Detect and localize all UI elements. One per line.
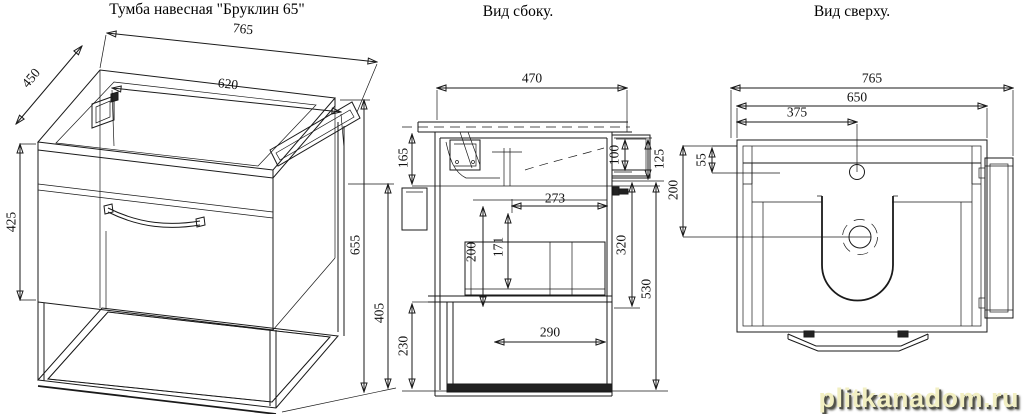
side-view-title: Вид сбоку. <box>483 3 553 21</box>
mesh-shelf <box>38 308 338 414</box>
dim-label-inner-height: 200 <box>464 242 478 262</box>
handle-top-view <box>788 331 928 351</box>
sink-cutout <box>817 196 898 301</box>
perspective-title: Тумба навесная "Бруклин 65" <box>109 1 305 19</box>
dim-label-side-depth: 470 <box>522 71 542 85</box>
dim-label-bracket-offset: 165 <box>396 148 410 168</box>
wall-bracket <box>92 92 118 128</box>
towel-rail-side <box>402 135 668 391</box>
dim-label-total-width: 765 <box>232 21 254 37</box>
perspective-view-panel: Тумба навесная "Бруклин 65" 765 620 450 … <box>0 0 400 414</box>
dim-label-body-height: 530 <box>639 279 653 299</box>
dim-label-basin-to-bottom: 320 <box>614 235 628 255</box>
drain-hole <box>683 220 878 255</box>
faucet-hole <box>850 124 865 180</box>
dim-label-rail-top: 100 <box>607 145 621 165</box>
dimension-lines <box>16 33 396 412</box>
top-view-panel: Вид сверху. 765 650 375 55 200 <box>670 0 1023 414</box>
cabinet-side-body <box>428 132 612 396</box>
dim-label-frame-height: 405 <box>372 303 386 323</box>
countertop-profile <box>402 122 632 132</box>
top-view-body <box>737 140 987 332</box>
dim-label-front-height: 425 <box>4 212 18 232</box>
side-view-drawing <box>400 0 670 414</box>
top-view-drawing <box>670 0 1023 414</box>
perspective-drawing <box>0 0 400 414</box>
technical-drawing-page: Тумба навесная "Бруклин 65" 765 620 450 … <box>0 0 1023 414</box>
towel-rail <box>270 102 360 336</box>
drawer-handle <box>104 204 205 227</box>
dim-label-lower-section: 230 <box>396 336 410 356</box>
dim-label-total-height: 655 <box>348 235 362 255</box>
side-view-panel: Вид сбоку. 470 165 100 125 273 171 200 3… <box>400 0 670 414</box>
dim-label-faucet-offset: 375 <box>787 105 807 119</box>
dim-label-drain-offset: 200 <box>666 180 680 200</box>
cabinet-body <box>38 106 335 330</box>
counter-frame <box>38 70 335 230</box>
towel-rail-top-view <box>979 158 1013 318</box>
mount-bracket-side <box>402 132 480 230</box>
dim-label-top-cabinet-width: 650 <box>847 90 867 104</box>
dim-label-drawer-inner: 171 <box>491 237 505 257</box>
drawer-side-profile <box>465 242 605 295</box>
dim-label-rail-height: 125 <box>652 149 666 169</box>
dim-label-cabinet-width: 620 <box>217 76 239 92</box>
dim-label-top-total-width: 765 <box>862 71 882 85</box>
dim-label-drawer-depth: 290 <box>540 325 560 339</box>
site-watermark: plitkanadom.ru <box>818 383 1019 414</box>
dim-label-back-band: 55 <box>694 153 708 167</box>
sink-profile <box>435 142 660 186</box>
dim-label-inner-depth: 273 <box>545 191 565 205</box>
dimension-lines-top <box>683 88 1013 236</box>
top-view-title: Вид сверху. <box>814 3 890 21</box>
